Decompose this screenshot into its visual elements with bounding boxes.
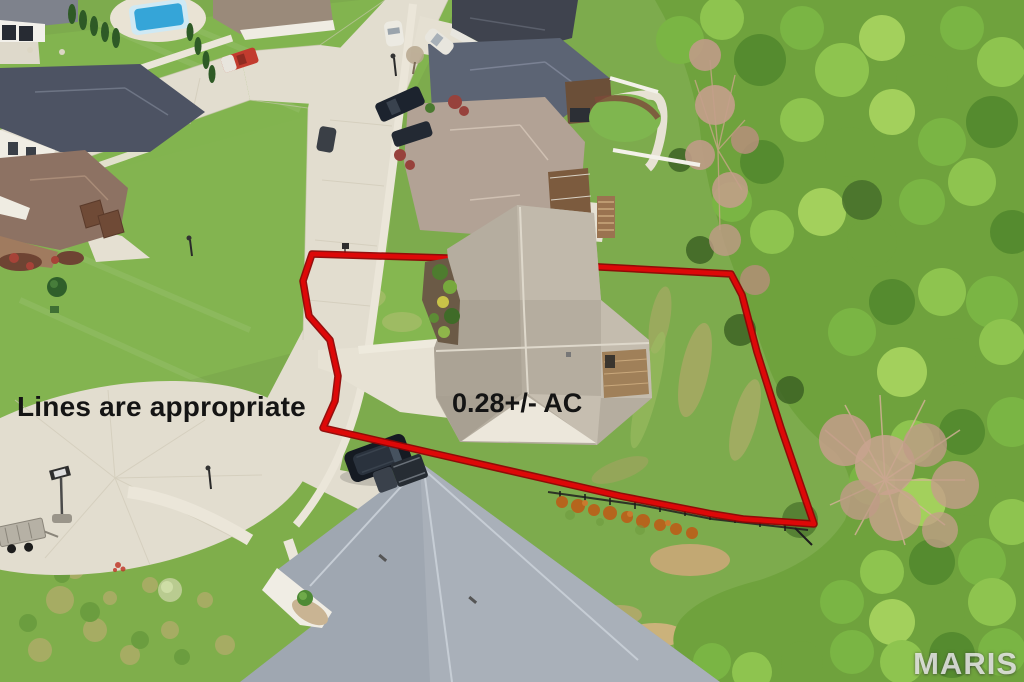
utility-box	[50, 306, 59, 313]
parkway-tree	[406, 46, 424, 64]
note-text: Lines are appropriate	[17, 393, 306, 421]
conifer-tree	[47, 277, 67, 297]
acreage-label: 0.28+/- AC	[452, 390, 582, 417]
aerial-photo: Lines are appropriate 0.28+/- AC MARIS	[0, 0, 1024, 682]
watermark-text: MARIS	[913, 648, 1018, 679]
white-car-1	[383, 20, 404, 47]
side-deck	[602, 349, 649, 398]
aerial-scene	[0, 0, 1024, 682]
